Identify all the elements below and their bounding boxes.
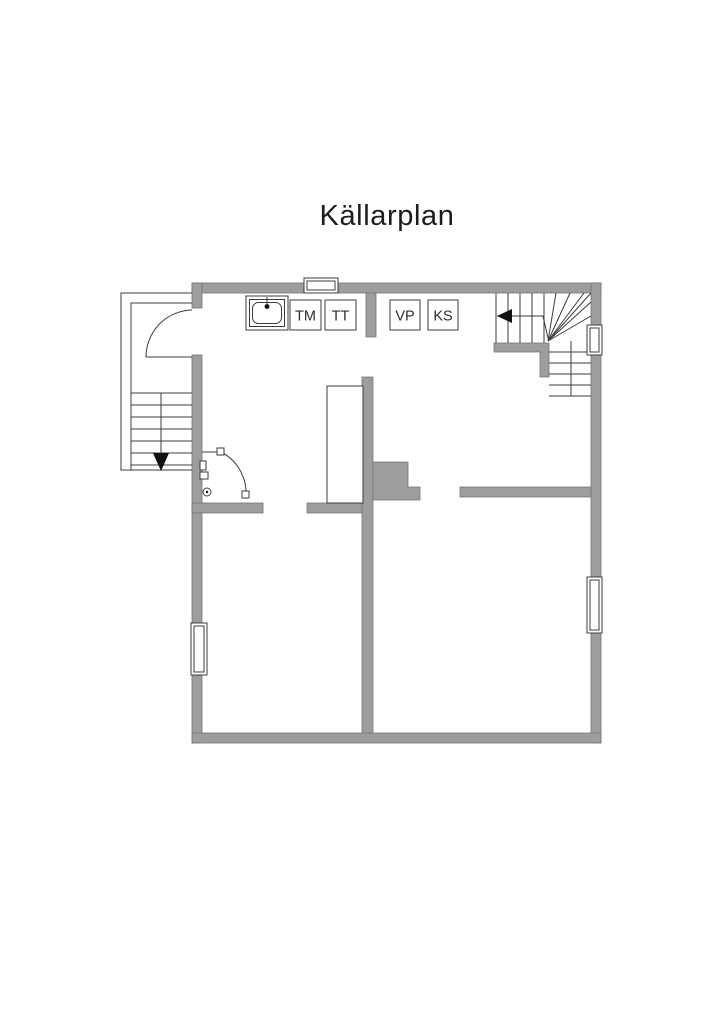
wall-mid-left-a <box>192 503 263 513</box>
exterior-stairs <box>121 293 192 471</box>
stairwell-outline <box>121 293 192 470</box>
window-top-icon <box>304 278 338 293</box>
floor-plan: TM TT VP KS <box>0 0 724 1024</box>
door-swing-arc <box>146 310 192 357</box>
stairs-direction-arrow-icon <box>497 309 512 323</box>
window-right-lower-icon <box>587 577 602 633</box>
stairs-down-arrow-icon <box>153 453 169 471</box>
stair-lower-treads <box>549 341 591 396</box>
walls <box>192 283 601 743</box>
sink-icon <box>246 296 288 330</box>
wall-mid-left-b <box>307 503 362 513</box>
wall-bottom <box>192 733 601 743</box>
wall-right-top <box>591 283 601 325</box>
shower-mixer-icon <box>200 461 206 470</box>
stair-upper-treads <box>508 293 544 343</box>
stair-winder-fan <box>548 293 591 341</box>
wall-center-vertical <box>362 377 373 733</box>
shaft-outline <box>327 386 363 503</box>
shower-icon <box>200 448 249 498</box>
wall-left-top-stub <box>192 283 202 308</box>
appliance-label-ks: KS <box>433 309 452 325</box>
wall-right-bottom <box>591 633 601 743</box>
entry-door-icon <box>146 310 192 357</box>
appliance-label-tm: TM <box>295 309 316 325</box>
wall-top <box>192 283 601 293</box>
chimney-block <box>373 462 420 500</box>
window-left-icon <box>191 623 207 675</box>
wall-right-mid <box>591 355 601 577</box>
appliance-label-vp: VP <box>395 309 414 325</box>
wall-stair-L <box>494 343 549 377</box>
appliance-label-tt: TT <box>332 309 350 325</box>
wall-mid-right <box>460 487 591 497</box>
window-right-upper-icon <box>587 325 602 355</box>
wall-left-mid <box>192 355 202 623</box>
wall-laundry-stub <box>366 293 376 337</box>
